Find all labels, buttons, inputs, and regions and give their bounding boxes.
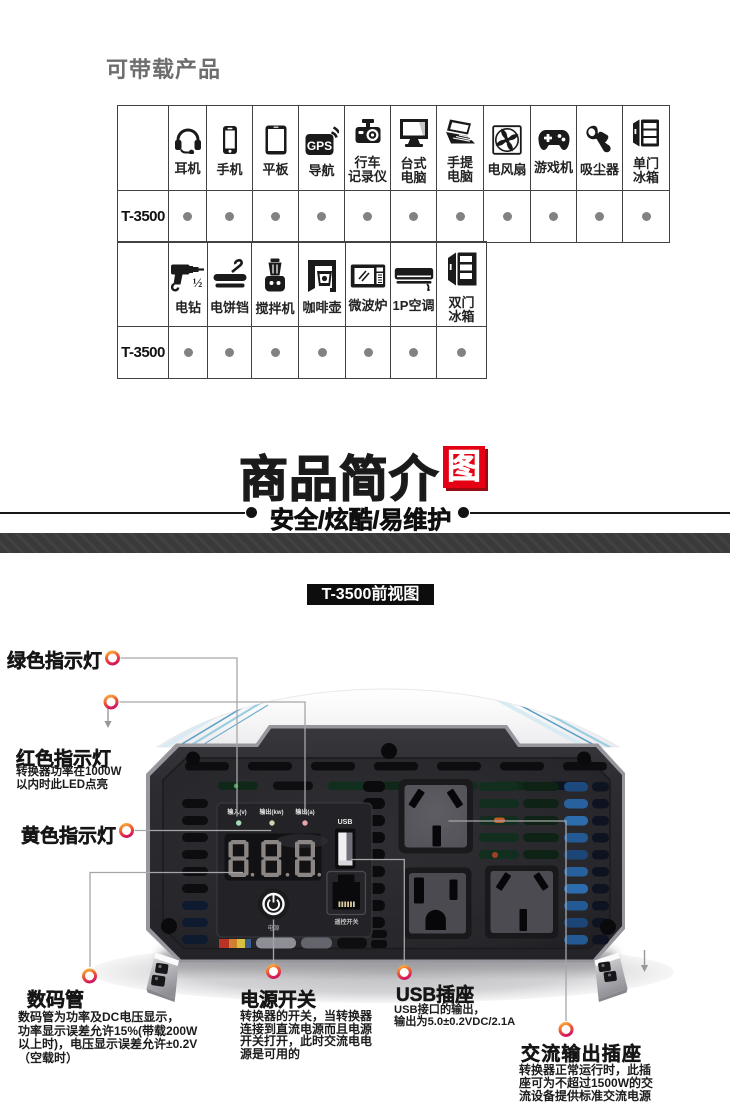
svg-text:GPS: GPS xyxy=(306,139,331,153)
svg-text:输出(kw): 输出(kw) xyxy=(259,808,283,816)
svg-text:USB: USB xyxy=(338,819,353,826)
svg-text:½: ½ xyxy=(193,275,203,290)
svg-text:遥控开关: 遥控开关 xyxy=(334,918,358,926)
